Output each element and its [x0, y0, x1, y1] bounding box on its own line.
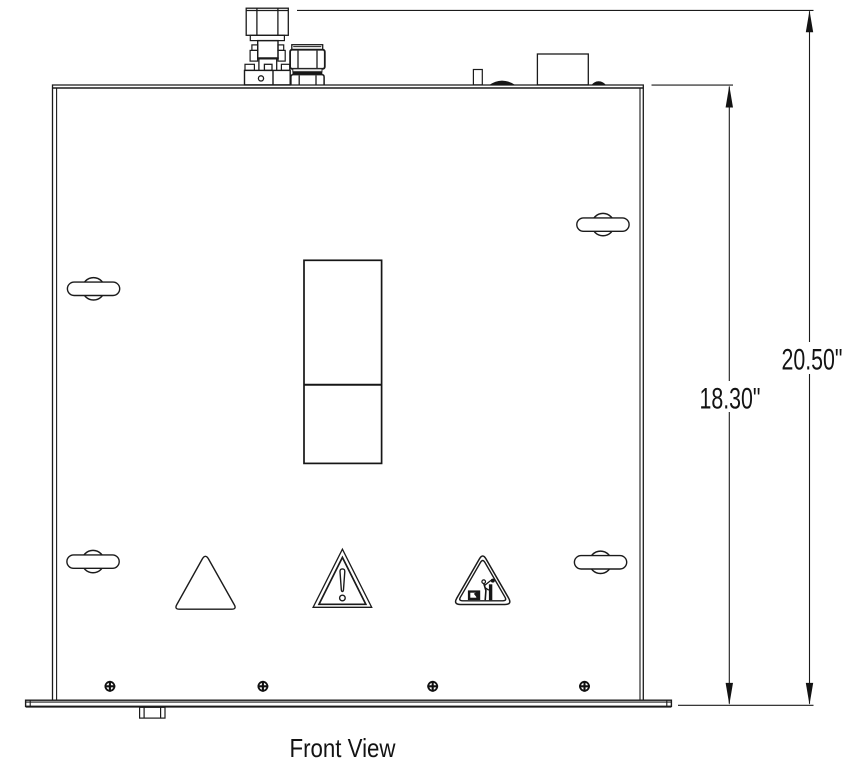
svg-text:18.30": 18.30"	[700, 383, 761, 416]
svg-text:Front View: Front View	[290, 733, 396, 763]
svg-text:20.50": 20.50"	[782, 344, 843, 377]
